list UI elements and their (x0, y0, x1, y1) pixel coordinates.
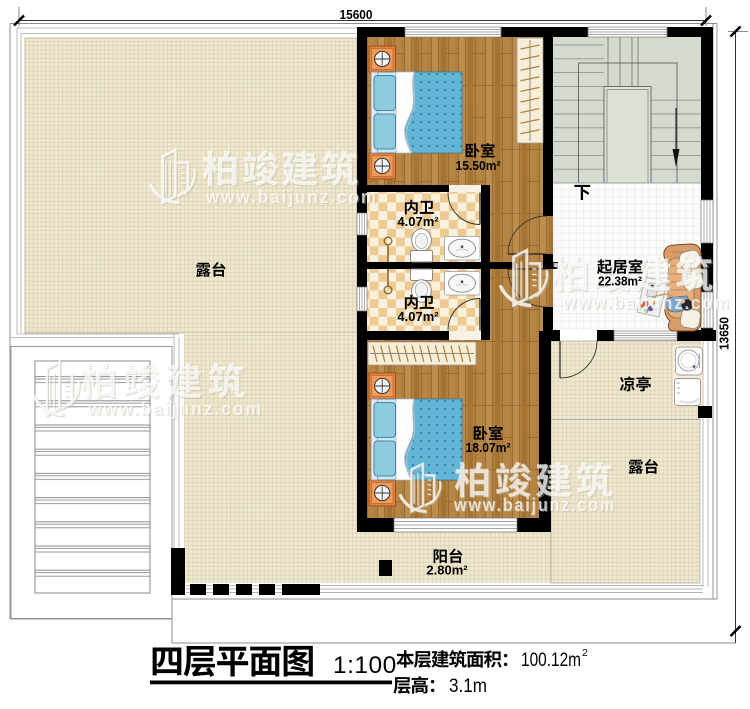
svg-text:13650: 13650 (718, 317, 732, 350)
svg-text:www.baijunz.com: www.baijunz.com (453, 495, 616, 515)
svg-text:22.38m²: 22.38m² (598, 274, 643, 289)
svg-text:1:100: 1:100 (333, 652, 397, 679)
svg-text:www.baijunz.com: www.baijunz.com (562, 293, 731, 313)
svg-text:4.07m²: 4.07m² (397, 214, 439, 229)
svg-text:www.baijunz.com: www.baijunz.com (205, 187, 378, 207)
svg-text:3.1m: 3.1m (449, 676, 487, 697)
svg-text:www.baijunz.com: www.baijunz.com (87, 399, 263, 419)
svg-text:4.07m²: 4.07m² (397, 309, 439, 324)
svg-text:2.80m²: 2.80m² (426, 563, 468, 578)
svg-text:2: 2 (582, 647, 588, 659)
svg-text:18.07m²: 18.07m² (466, 440, 512, 455)
svg-text:15.50m²: 15.50m² (456, 158, 502, 173)
svg-text:15600: 15600 (340, 8, 373, 22)
svg-text:100.12m: 100.12m (521, 650, 581, 671)
